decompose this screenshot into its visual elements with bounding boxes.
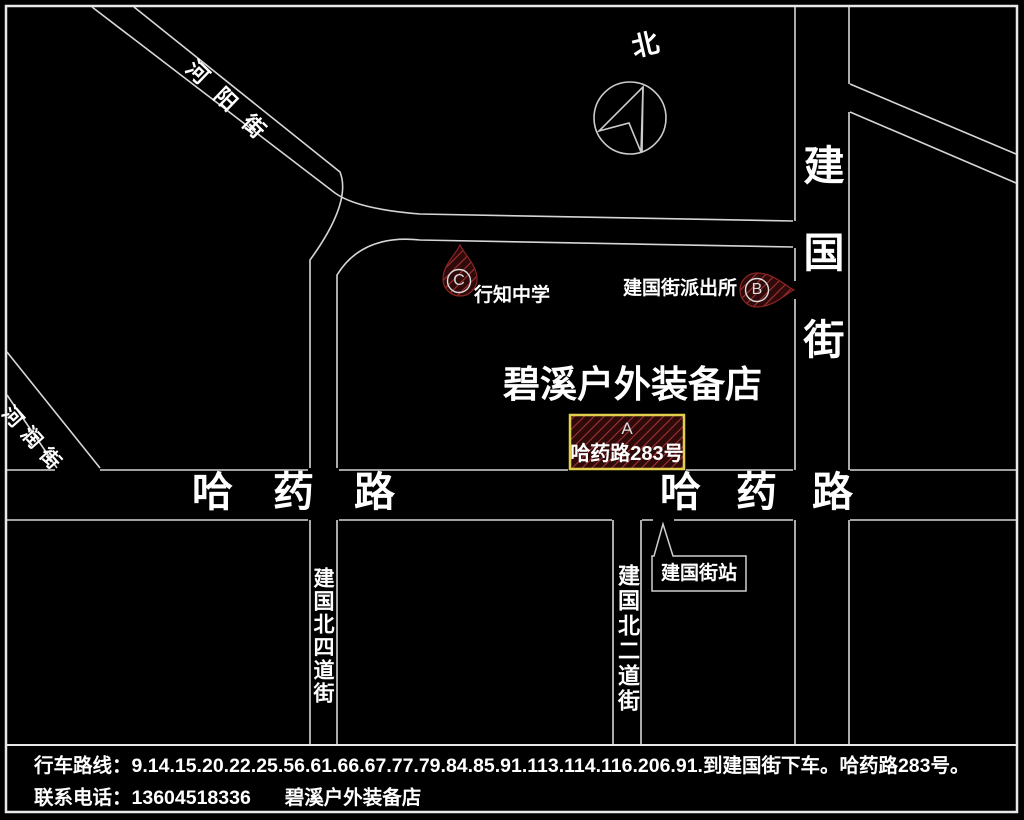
- marker-b-label: 建国街派出所: [623, 279, 737, 298]
- footer-route-line: 行车路线：9.14.15.20.22.25.56.61.66.67.77.79.…: [34, 757, 970, 777]
- road-heyang-lower-edge: [134, 7, 343, 468]
- bus-stop-label: 建国街站: [661, 564, 737, 583]
- footer-contact-line: 联系电话：13604518336 碧溪户外装备店: [34, 789, 421, 809]
- street-label-hayao-left: 哈药路: [192, 472, 435, 513]
- road-horizontal-bottom-edge: [337, 239, 793, 468]
- marker-b-letter: B: [745, 282, 769, 298]
- map-canvas: 北 河阳街 河润街 建国街 哈药路 哈药路 建国北四道街 建国北二道街 碧溪户外…: [0, 0, 1024, 820]
- marker-a-label: 哈药路283号: [570, 444, 684, 464]
- road-topright-diagonal: [850, 84, 1016, 183]
- road-network: [0, 0, 1024, 820]
- footer-contact-phone: 联系电话：13604518336: [34, 789, 251, 809]
- map-border: [6, 6, 1017, 812]
- store-name: 碧溪户外装备店: [503, 366, 762, 403]
- street-label-hayao-right: 哈药路: [660, 472, 888, 513]
- marker-c-label: 行知中学: [474, 286, 550, 305]
- street-label-jianguo-n2: 建国北二道街: [616, 564, 638, 714]
- marker-a-letter: A: [570, 420, 684, 437]
- compass-north-label: 北: [629, 29, 661, 61]
- street-label-jianguo-n4: 建国北四道街: [312, 567, 333, 705]
- footer-contact-store: 碧溪户外装备店: [285, 789, 422, 809]
- street-label-jianguo: 建国街: [799, 144, 840, 405]
- compass-icon: [594, 82, 666, 154]
- road-heyang-upper-edge: [92, 7, 793, 221]
- marker-c-letter: C: [447, 273, 471, 289]
